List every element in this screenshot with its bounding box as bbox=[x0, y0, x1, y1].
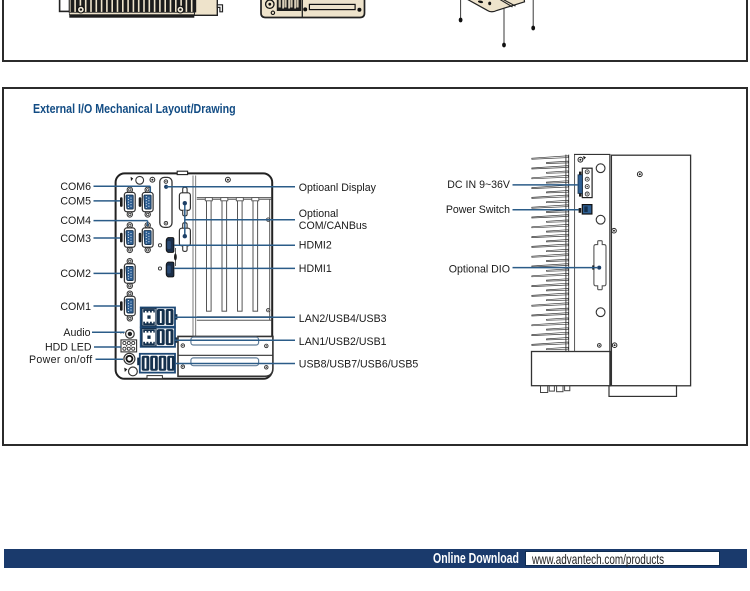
svg-text:DC IN 9~36V: DC IN 9~36V bbox=[447, 179, 511, 191]
svg-text:Optioanl Display: Optioanl Display bbox=[299, 182, 377, 194]
svg-text:HDD LED: HDD LED bbox=[45, 342, 92, 354]
svg-text:HDMI1: HDMI1 bbox=[299, 263, 332, 275]
svg-text:USB8/USB7/USB6/USB5: USB8/USB7/USB6/USB5 bbox=[299, 358, 419, 370]
svg-text:COM5: COM5 bbox=[60, 195, 91, 207]
svg-text:COM4: COM4 bbox=[60, 215, 91, 227]
svg-text:COM2: COM2 bbox=[60, 268, 91, 280]
svg-text:COM6: COM6 bbox=[60, 181, 91, 193]
svg-text:COM1: COM1 bbox=[60, 301, 91, 313]
svg-text:Optional: Optional bbox=[299, 208, 338, 220]
svg-text:HDMI2: HDMI2 bbox=[299, 239, 332, 251]
svg-text:LAN1/USB2/USB1: LAN1/USB2/USB1 bbox=[299, 336, 387, 348]
svg-text:Optional DIO: Optional DIO bbox=[449, 264, 510, 276]
svg-text:LAN2/USB4/USB3: LAN2/USB4/USB3 bbox=[299, 313, 387, 325]
svg-text:Power Switch: Power Switch bbox=[446, 204, 510, 216]
svg-text:COM/CANBus: COM/CANBus bbox=[299, 220, 367, 232]
svg-text:Power on/off: Power on/off bbox=[29, 354, 93, 366]
svg-text:COM3: COM3 bbox=[60, 233, 91, 245]
svg-text:Audio: Audio bbox=[63, 327, 90, 339]
